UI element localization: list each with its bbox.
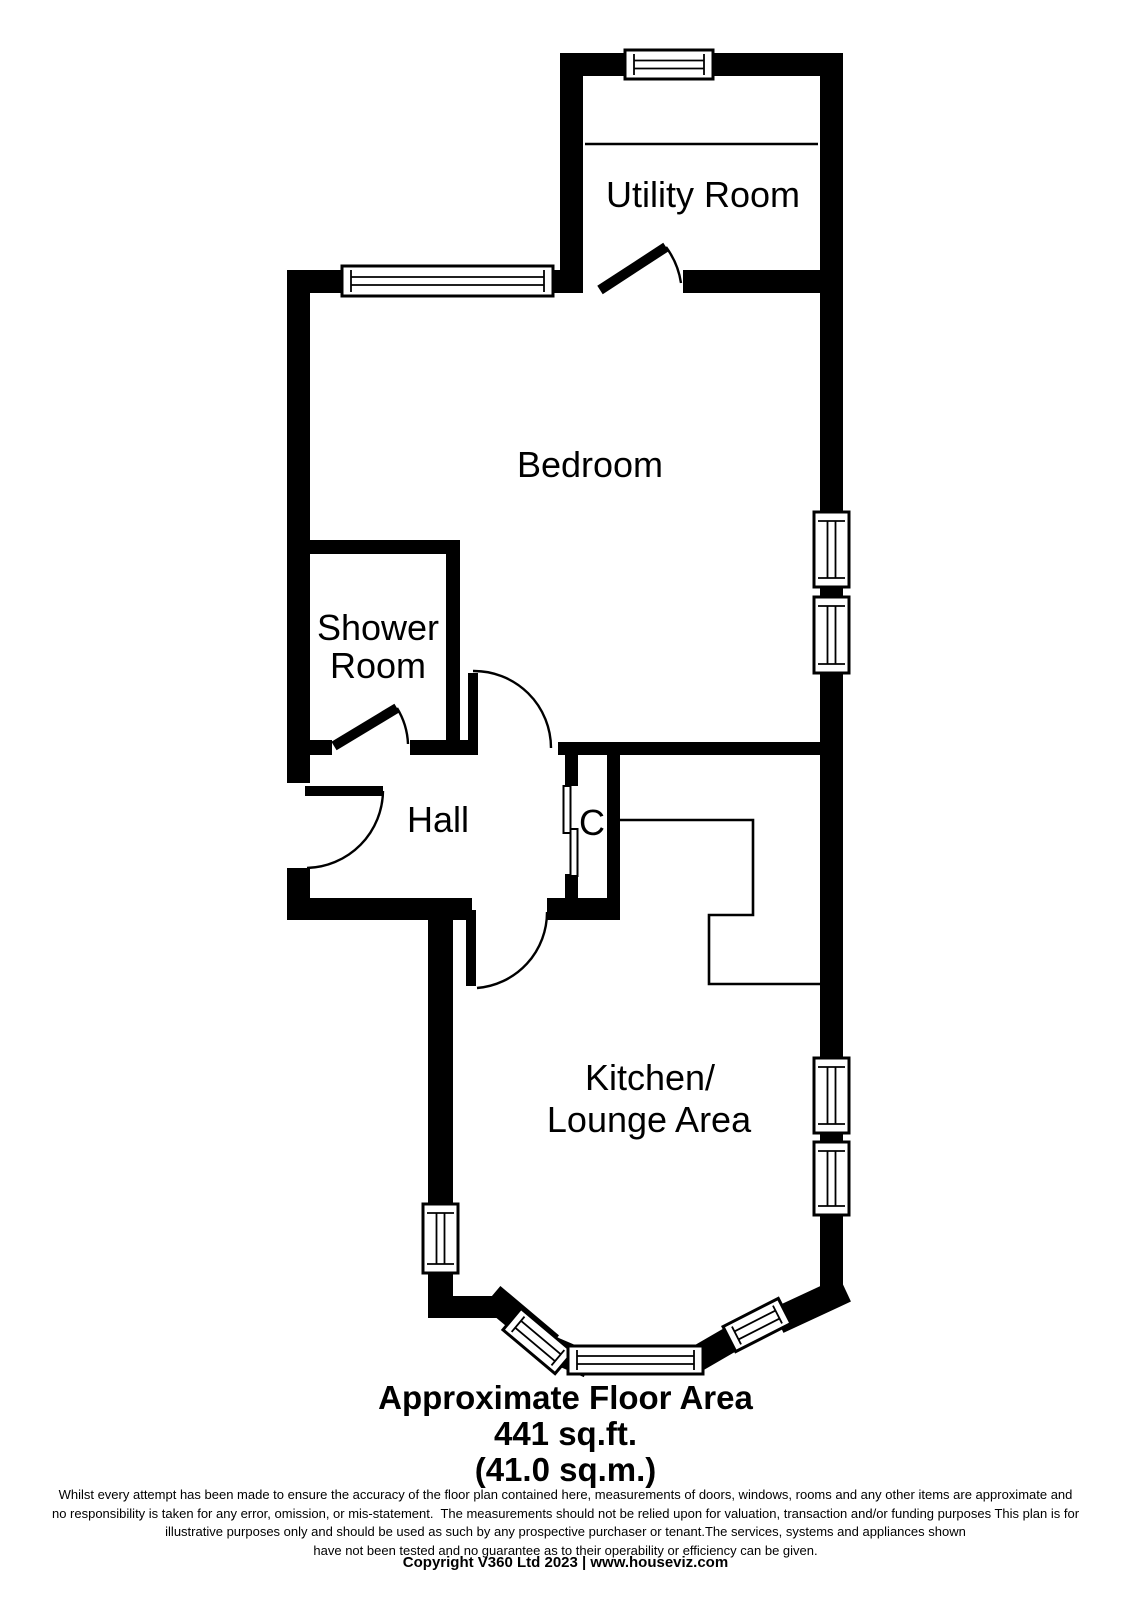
bedroom-label: Bedroom [517, 444, 663, 485]
bedroom-right-window-1 [814, 512, 849, 587]
kitchen-right-window-1 [814, 1058, 849, 1133]
room-labels: Utility Room Bedroom Shower Room Hall C … [317, 174, 800, 1140]
bay-right-wedge-wall [702, 1338, 733, 1356]
shower-bottom-wall-right [410, 740, 478, 755]
floor-area-imperial: 441 sq.ft. [0, 1416, 1131, 1452]
front-door [305, 791, 383, 868]
utility-window [625, 50, 713, 79]
copyright-line: Copyright V360 Ltd 2023 | www.houseviz.c… [0, 1554, 1131, 1571]
shower-room-label-line1: Shower [317, 607, 439, 648]
shower-right-wall [446, 540, 460, 755]
bay-right-diagonal-wall [790, 1295, 833, 1315]
disclaimer-line: no responsibility is taken for any error… [0, 1505, 1131, 1524]
shower-bottom-wall-left [287, 740, 332, 755]
kitchen-door [471, 910, 547, 988]
windows [342, 50, 849, 1374]
utility-left-wall [560, 53, 583, 293]
hall-label: Hall [407, 799, 469, 840]
kitchen-lounge-label-line2: Lounge Area [547, 1099, 752, 1140]
disclaimer-block: Whilst every attempt has been made to en… [0, 1486, 1131, 1560]
floor-area-metric: (41.0 sq.m.) [0, 1452, 1131, 1488]
shower-room-label-line2: Room [330, 645, 426, 686]
hall-bottom-wall-right [547, 898, 620, 920]
walls [287, 53, 843, 1360]
bedroom-top-window [342, 266, 553, 296]
kitchen-left-window [423, 1204, 458, 1273]
disclaimer-line: illustrative purposes only and should be… [0, 1523, 1131, 1542]
kitchen-counter-outline [620, 820, 821, 984]
closet-left-stub-top [565, 755, 578, 786]
utility-bottom-wall [683, 270, 820, 293]
closet-label: C [579, 802, 605, 843]
floor-plan-drawing: Utility Room Bedroom Shower Room Hall C … [0, 0, 1131, 1600]
closet-sliding-door [564, 786, 578, 876]
floor-area-block: Approximate Floor Area 441 sq.ft. (41.0 … [0, 1380, 1131, 1488]
floor-plan-page: Utility Room Bedroom Shower Room Hall C … [0, 0, 1131, 1600]
bedroom-right-window-2 [814, 597, 849, 673]
bedroom-door [473, 671, 551, 748]
floor-area-title: Approximate Floor Area [0, 1380, 1131, 1416]
disclaimer-line: Whilst every attempt has been made to en… [0, 1486, 1131, 1505]
bay-bottom-window [568, 1346, 703, 1374]
closet-right-wall [607, 755, 620, 905]
bay-right-diagonal-window [723, 1298, 791, 1351]
kitchen-right-window-2 [814, 1142, 849, 1215]
shower-top-wall [287, 540, 460, 554]
kitchen-lounge-label-line1: Kitchen/ [585, 1057, 715, 1098]
utility-door [600, 247, 681, 290]
shower-door [334, 708, 408, 746]
bedroom-hall-divider-wall [558, 742, 820, 755]
left-exterior-wall-upper [287, 270, 310, 783]
utility-room-label: Utility Room [606, 174, 800, 215]
